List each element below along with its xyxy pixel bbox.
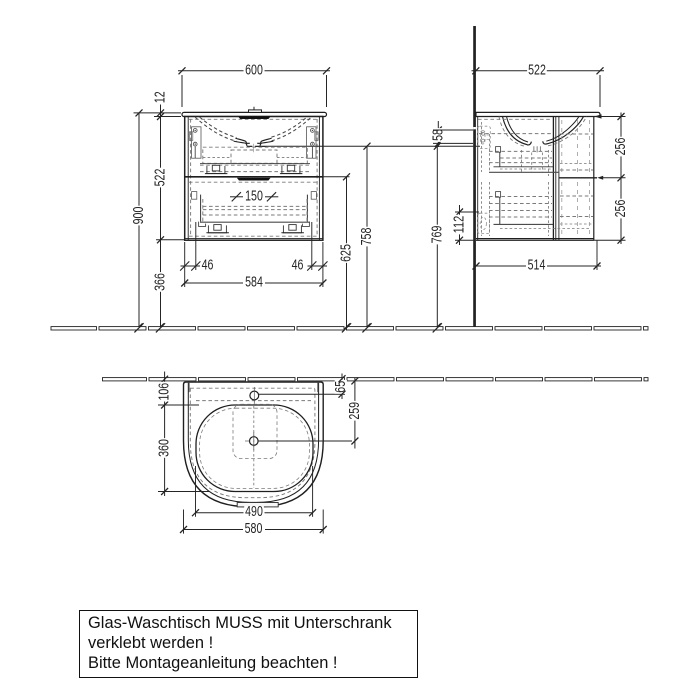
svg-text:366: 366 (153, 273, 169, 291)
svg-text:65: 65 (333, 381, 349, 393)
svg-text:112: 112 (452, 216, 468, 234)
svg-text:490: 490 (245, 504, 263, 520)
svg-text:514: 514 (528, 258, 546, 274)
svg-text:522: 522 (153, 169, 169, 187)
svg-text:150: 150 (245, 188, 263, 204)
svg-text:360: 360 (157, 439, 173, 457)
svg-text:769: 769 (429, 226, 445, 244)
svg-text:46: 46 (292, 258, 304, 274)
svg-text:259: 259 (347, 402, 363, 420)
svg-text:106: 106 (157, 383, 173, 401)
svg-text:256: 256 (613, 200, 629, 218)
svg-text:58: 58 (430, 129, 446, 141)
svg-text:625: 625 (339, 244, 355, 262)
svg-text:46: 46 (202, 258, 214, 274)
svg-text:256: 256 (613, 138, 629, 156)
svg-text:900: 900 (131, 207, 147, 225)
svg-text:584: 584 (245, 275, 263, 291)
svg-text:12: 12 (153, 91, 169, 103)
svg-text:758: 758 (359, 228, 375, 246)
svg-text:522: 522 (528, 62, 546, 78)
svg-text:580: 580 (245, 521, 263, 537)
svg-text:600: 600 (245, 62, 263, 78)
